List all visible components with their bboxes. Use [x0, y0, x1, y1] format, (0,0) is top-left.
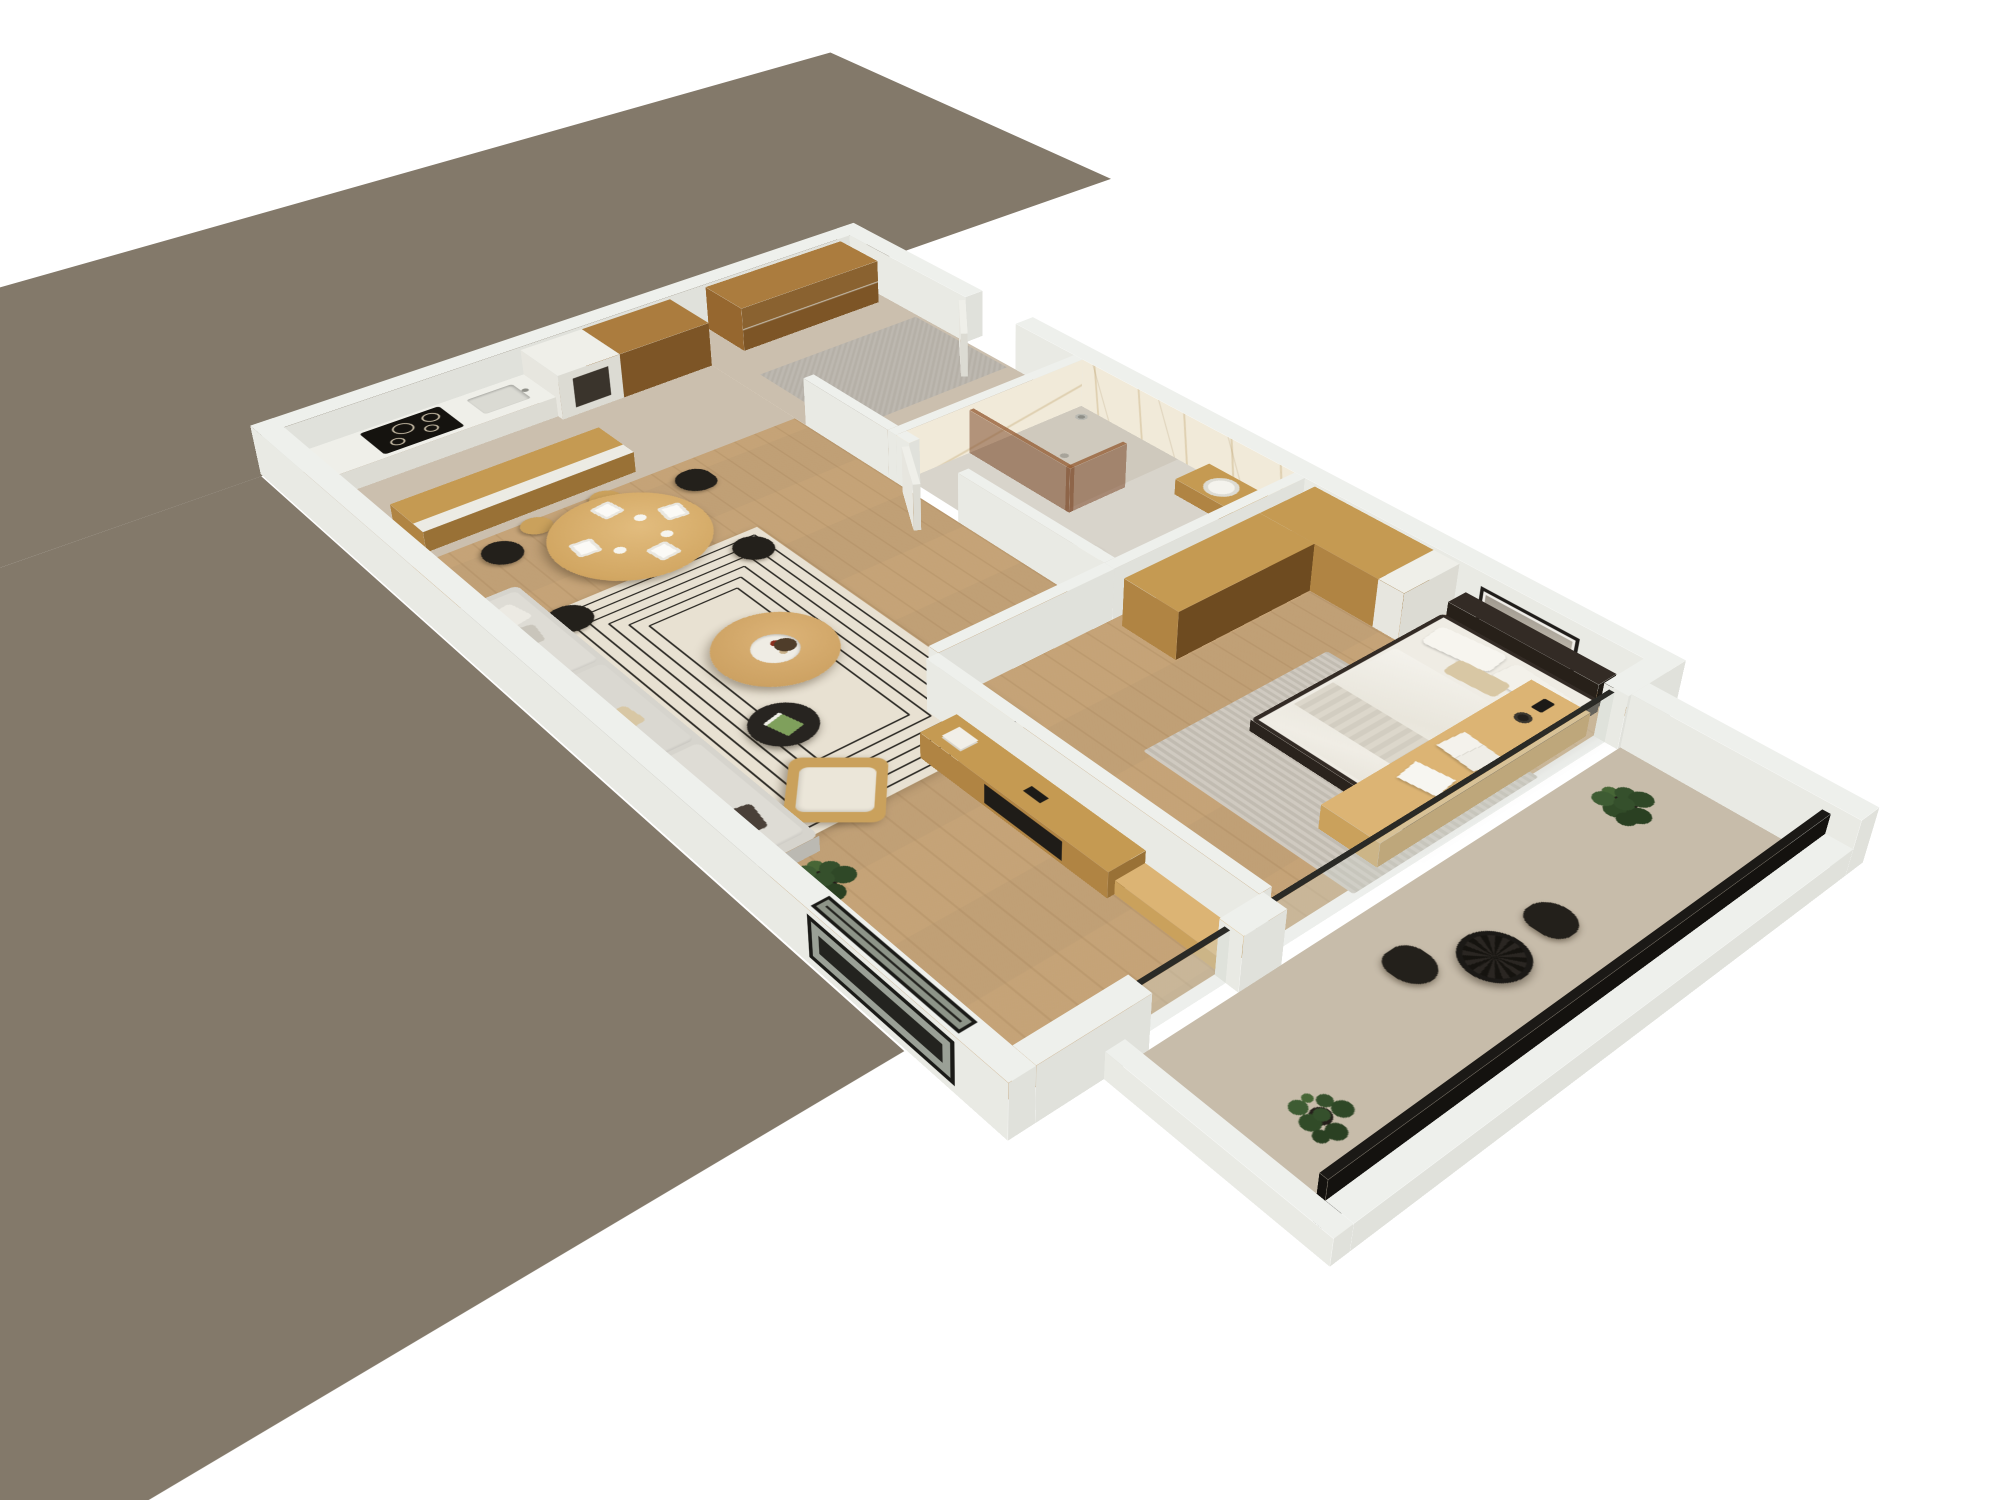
burner-icon: [418, 411, 443, 424]
door-east-face: [913, 484, 922, 531]
book-stack: [942, 727, 978, 750]
wall-east-face: [965, 291, 982, 343]
tv-remote: [1023, 786, 1049, 803]
burner-icon: [388, 421, 419, 436]
apartment-plan: [183, 247, 1994, 1467]
burner-icon: [388, 436, 409, 446]
render-scene: [0, 0, 2000, 1500]
oven-niche: [573, 366, 612, 407]
burner-icon: [421, 423, 441, 433]
alarm-clock: [1510, 710, 1536, 725]
mug: [632, 513, 649, 522]
smartphone: [1531, 698, 1556, 713]
entry-door-leaf: [959, 342, 968, 376]
place-setting-plate: [656, 502, 690, 521]
door-east-face: [961, 334, 968, 377]
